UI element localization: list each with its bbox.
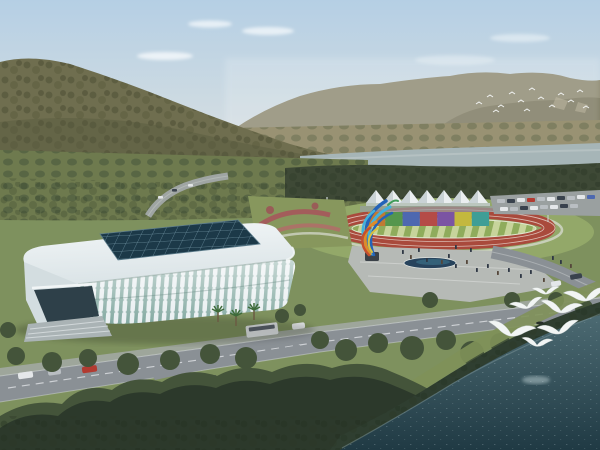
- rainbow-wall: [368, 212, 489, 226]
- water-glint: [522, 376, 550, 384]
- scene-image: [0, 0, 600, 450]
- dark-bird: [536, 322, 544, 325]
- pond-sheen: [416, 259, 450, 265]
- sports-complex-rendering: [0, 0, 600, 450]
